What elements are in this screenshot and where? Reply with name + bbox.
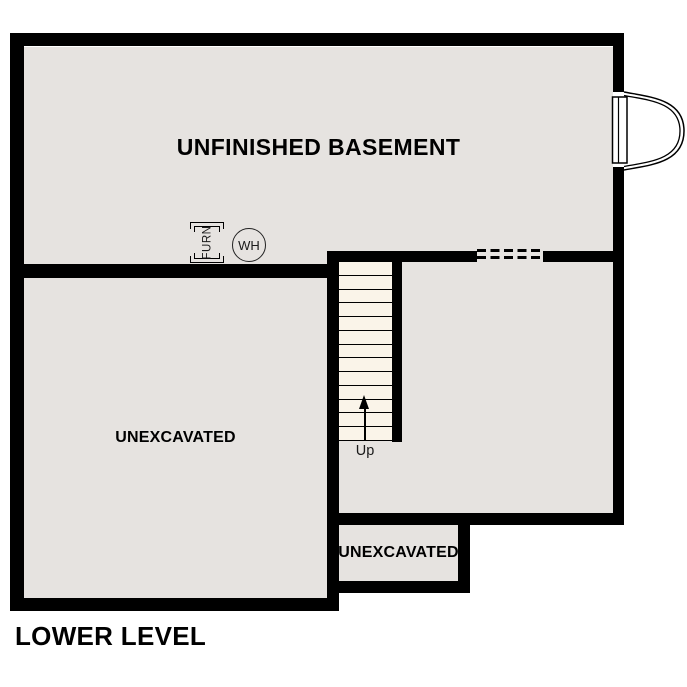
room-label-unexcavated-small: UNEXCAVATED <box>338 544 458 562</box>
wall-basement-divider-left <box>10 264 339 278</box>
wall-exterior-right-upper <box>613 33 624 92</box>
room-unexcavated-small: UNEXCAVATED <box>339 525 458 581</box>
water-heater-symbol: WH <box>232 228 266 262</box>
stair-tread <box>339 276 392 290</box>
up-arrow-icon <box>359 395 369 409</box>
wall-exterior-left <box>10 33 24 611</box>
window-well-inner-arc <box>624 96 680 167</box>
room-label-unexcavated-left: UNEXCAVATED <box>115 429 235 447</box>
water-heater-label: WH <box>238 238 260 253</box>
stair-tread <box>339 317 392 331</box>
dashed-opening-line-top <box>477 249 543 252</box>
wall-exterior-top <box>10 33 624 46</box>
stair-tread <box>339 290 392 304</box>
stair-tread <box>339 303 392 317</box>
wall-stair-top-left-segment <box>327 251 477 262</box>
wall-stair-right <box>392 251 402 442</box>
stair-tread <box>339 372 392 386</box>
stair-tread <box>339 358 392 372</box>
wall-right-room-bottom <box>327 513 624 525</box>
up-arrow-line <box>364 407 366 440</box>
stair-tread <box>339 345 392 359</box>
furnace-symbol: FURN <box>190 222 224 263</box>
wall-left-room-bottom <box>10 598 339 611</box>
wall-stair-left <box>327 251 339 611</box>
stair-tread <box>339 331 392 345</box>
window-well-outer-arc <box>624 92 684 170</box>
room-unexcavated-left: UNEXCAVATED <box>24 278 327 598</box>
floor-plan: UNEXCAVATED UNEXCAVATED UNFINISHED BASEM… <box>0 0 687 687</box>
room-label-unfinished-basement: UNFINISHED BASEMENT <box>24 134 613 161</box>
dashed-opening-line-bottom <box>477 256 543 259</box>
wall-stair-top-right-segment <box>543 251 613 262</box>
window-frame <box>613 97 628 163</box>
page-title: LOWER LEVEL <box>15 621 206 652</box>
wall-small-room-bottom <box>327 581 470 593</box>
furnace-label: FURN <box>187 226 228 260</box>
stair-tread <box>339 262 392 276</box>
wall-exterior-right-lower <box>613 167 624 525</box>
stairs-direction-label: Up <box>340 443 390 459</box>
